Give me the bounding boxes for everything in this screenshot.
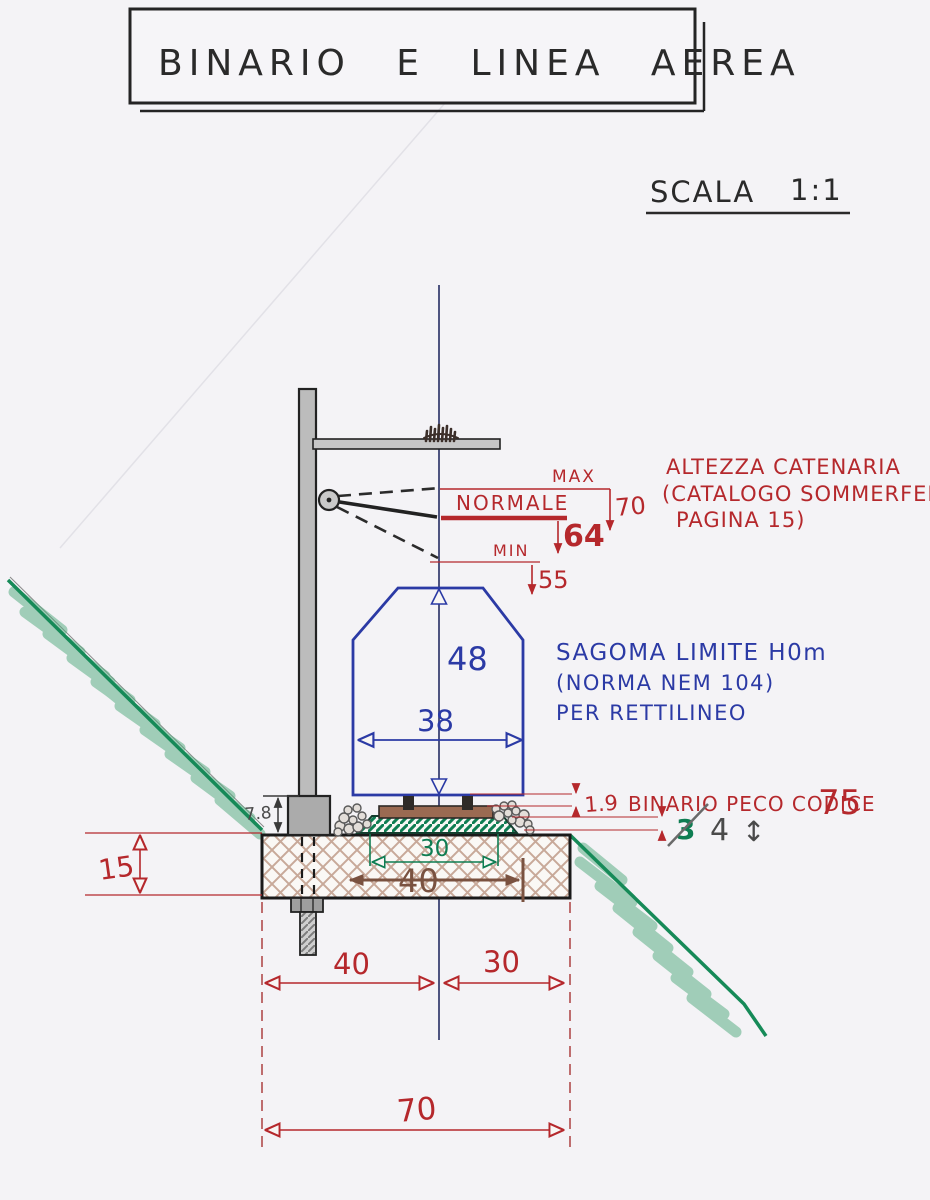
max-label: MAX [552, 467, 596, 487]
dim-total-width: 70 [266, 1091, 563, 1130]
gauge-note-line1: SAGOMA LIMITE H0m [556, 640, 827, 666]
bed-depth-value: 15 [96, 849, 136, 887]
rail-code-value: 75 [818, 783, 861, 823]
underlay-width-value: 30 [420, 836, 449, 862]
normal-label: NORMALE [456, 491, 569, 515]
rail-height-value: 1.9 [584, 791, 619, 817]
loading-gauge: 48 38 [353, 588, 523, 795]
registration-arm [333, 501, 437, 517]
drawing-canvas: BINARIO E LINEA AEREA SCALA 1:1 [0, 0, 930, 1200]
catenary-note: ALTEZZA CATENARIA (CATALOGO SOMMERFELDT … [662, 455, 930, 532]
slope-shading-left [14, 592, 260, 834]
updown-arrow-icon: ↕ [742, 815, 765, 848]
anchor-rod [300, 912, 316, 955]
embankment-slope-right [570, 835, 766, 1036]
underlay-old-value: 3 [676, 813, 695, 846]
dim-gauge-height: 48 [432, 589, 488, 794]
min-label: MIN [493, 541, 530, 560]
right-half-width-value: 30 [483, 945, 520, 979]
max-height-value: 70 [614, 491, 647, 522]
left-half-width-value: 40 [333, 947, 370, 981]
scale-ratio: 1:1 [790, 173, 843, 207]
total-width-value: 70 [396, 1091, 438, 1130]
ballast-top-width-value: 40 [398, 862, 439, 900]
gauge-height-value: 48 [447, 640, 488, 678]
gauge-note-line3: PER RETTILINEO [556, 701, 747, 725]
dim-gauge-width: 38 [359, 704, 521, 740]
rail-right [462, 796, 473, 810]
anchor-plate [291, 898, 323, 912]
wire-max-dashed [338, 488, 440, 496]
normal-height-value: 64 [563, 519, 605, 554]
slope-shading-right [580, 848, 736, 1032]
scanned-technical-drawing: BINARIO E LINEA AEREA SCALA 1:1 [0, 0, 930, 1200]
rail-left [403, 796, 414, 810]
pivot-pin [327, 498, 332, 503]
track-structure [334, 796, 534, 836]
catenary-note-line1: ALTEZZA CATENARIA [666, 455, 901, 479]
mast-base-height-value: 7.8 [244, 803, 272, 825]
cantilever-arm [313, 439, 500, 449]
min-height-value: 55 [538, 566, 569, 594]
gauge-width-value: 38 [417, 704, 454, 738]
scale-label: SCALA [650, 175, 755, 209]
underlay-value: 4 [710, 813, 729, 848]
scale-note: SCALA 1:1 [646, 173, 850, 213]
title-box: BINARIO E LINEA AEREA [130, 9, 801, 111]
mast-pole [299, 389, 316, 797]
page-title: BINARIO E LINEA AEREA [158, 43, 801, 84]
foundation-collar [288, 796, 330, 835]
catenary-note-line2: (CATALOGO SOMMERFELDT [662, 482, 930, 506]
catenary-mast-assembly [299, 389, 500, 797]
dim-bed-depth: 15 [85, 833, 262, 895]
paper-crease [60, 95, 452, 548]
sleeper-strip [379, 806, 493, 818]
embankment-slope-left [8, 577, 264, 834]
gauge-outline [353, 588, 523, 795]
dim-catenary-min: MIN 55 [430, 541, 569, 594]
gauge-note-line2: (NORMA NEM 104) [556, 671, 775, 695]
catenary-note-line3: PAGINA 15) [676, 508, 805, 532]
gauge-note: SAGOMA LIMITE H0m (NORMA NEM 104) PER RE… [556, 640, 827, 725]
